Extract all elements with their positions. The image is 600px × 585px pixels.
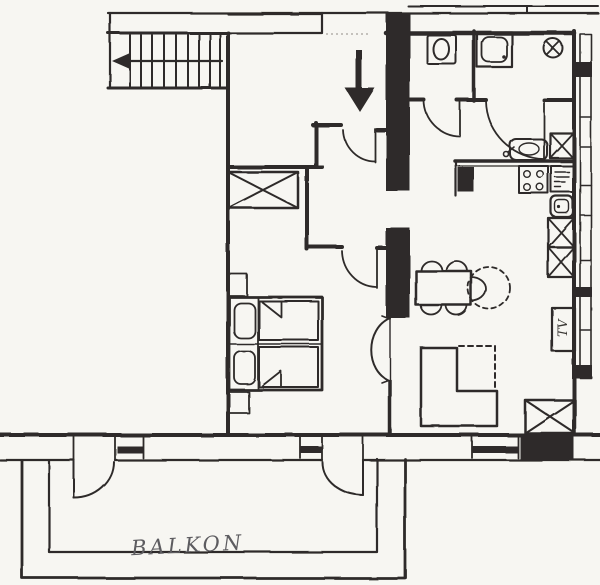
ceiling-light-cross — [546, 41, 559, 54]
stair-direction-arrow — [112, 53, 130, 69]
appliance-vent-lines — [555, 172, 569, 187]
dining-chairs-top — [421, 261, 467, 271]
building-shell — [108, 6, 598, 34]
cabinet-cross — [548, 218, 574, 247]
shower-room — [477, 32, 563, 67]
kitchen-side-panel — [458, 167, 474, 192]
facade-pier — [574, 287, 592, 297]
window-sill — [472, 446, 518, 453]
shaft-wall-upper — [386, 13, 410, 191]
burner-icon — [524, 171, 531, 178]
bedside-pier — [228, 274, 247, 296]
bottom-wall — [0, 435, 600, 498]
blanket-fold — [262, 301, 281, 317]
tv-label: TV — [556, 317, 571, 337]
scanned-floor-plan: TV BALKON — [0, 0, 600, 585]
balcony-door-swing-arc — [74, 462, 114, 498]
sink-drain — [557, 205, 560, 208]
entrance — [313, 50, 386, 162]
table-extension-dashed-circle — [468, 267, 510, 309]
shower-drain — [502, 55, 506, 59]
bedside-pier — [228, 392, 249, 413]
facade-pier — [574, 62, 592, 77]
facade-pier — [574, 365, 592, 378]
dining-table — [416, 271, 471, 305]
blanket-fold — [262, 371, 281, 387]
landing-wall-stub — [227, 13, 322, 33]
shaft-wall-lower — [386, 228, 410, 318]
kitchen-sink-basin — [519, 143, 539, 155]
balcony-door-swing-arc — [322, 462, 363, 495]
burner-icon — [524, 184, 531, 191]
dining-chairs-bottom — [421, 305, 467, 315]
sofa-dashed-extension — [459, 346, 495, 389]
wc-room — [424, 35, 460, 136]
bottom-right-wall-fill — [520, 436, 574, 459]
stove — [519, 166, 548, 193]
pillow — [234, 303, 255, 338]
pillow — [234, 351, 255, 384]
living-dining: TV — [416, 261, 575, 433]
balcony — [22, 459, 405, 578]
burner-icon — [537, 171, 544, 178]
kitchen-sink-lower-basin — [555, 200, 569, 213]
toilet-bowl — [433, 39, 449, 60]
dining-chair-right — [471, 277, 486, 301]
cabinet-cross — [525, 400, 575, 433]
window-sill — [300, 446, 322, 453]
right-facade — [574, 34, 592, 378]
staircase — [108, 13, 228, 88]
window-sill — [117, 446, 143, 453]
window-band-lines — [580, 34, 591, 378]
kitchen — [455, 100, 574, 277]
wardrobe-cross — [228, 172, 298, 208]
bedroom-door-stubs — [382, 316, 390, 383]
balcony-outer-railing — [22, 459, 405, 578]
floor-plan-drawing: TV BALKON — [0, 0, 600, 585]
window-mullion-ticks — [580, 117, 591, 330]
corner-sofa — [421, 348, 497, 426]
entry-door-swing-arc — [343, 130, 375, 161]
hallway — [228, 123, 386, 288]
appliance — [551, 166, 573, 192]
entrance-arrow-head — [345, 88, 375, 112]
balcony-label: BALKON — [129, 530, 244, 560]
entrance-arrow-shaft — [356, 50, 362, 90]
bedroom-door-swing-arc — [371, 318, 390, 381]
kitchen-door-swing-arc — [486, 101, 544, 159]
hall-bottom-wall — [307, 247, 386, 248]
hall-door-swing-arc — [342, 251, 376, 287]
cabinet-cross — [548, 247, 574, 277]
wc-door-swing-arc — [424, 100, 460, 136]
burner-icon — [537, 184, 544, 191]
cabinet-cross — [550, 133, 573, 158]
